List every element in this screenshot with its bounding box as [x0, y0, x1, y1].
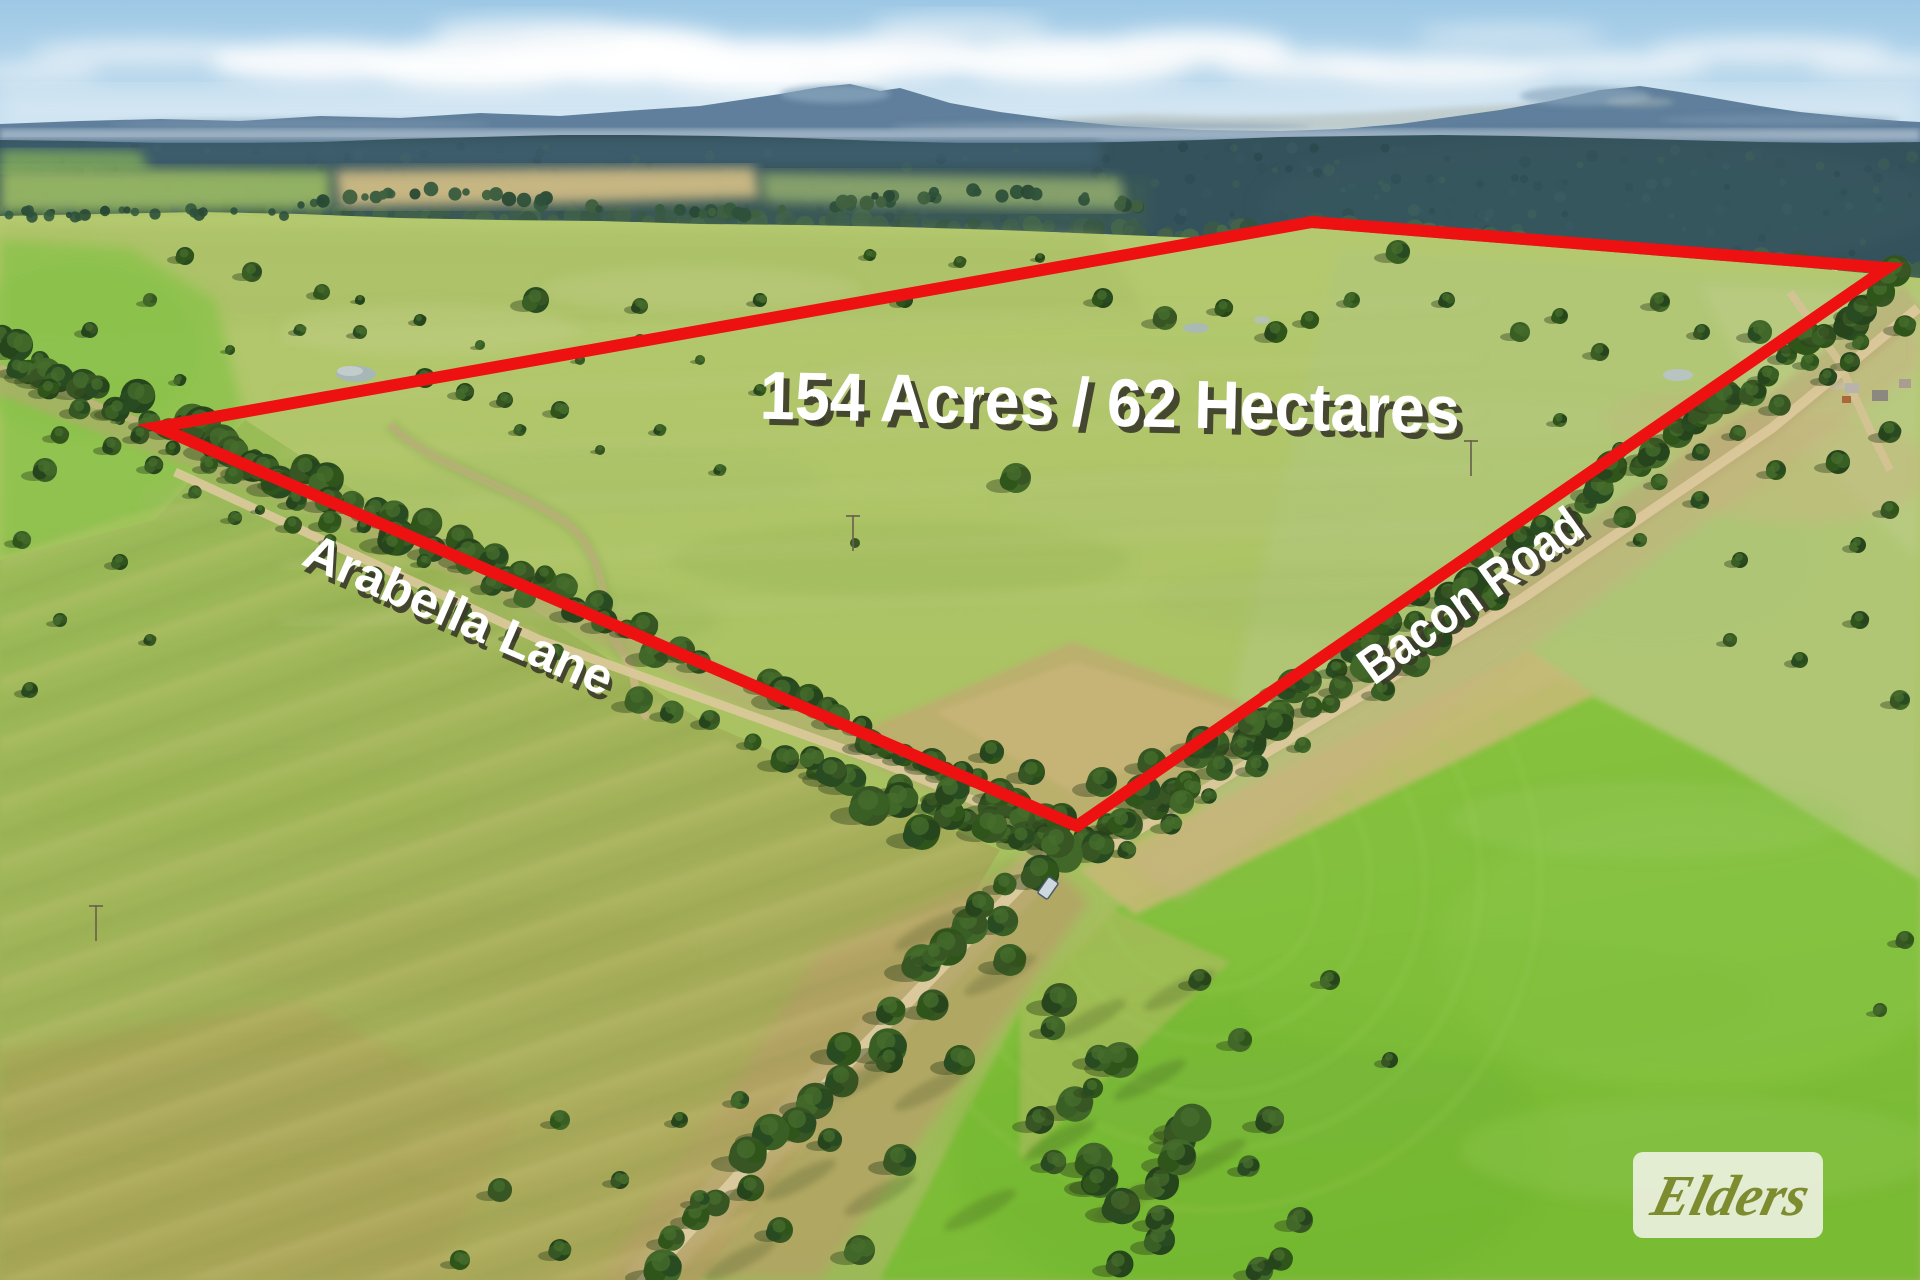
svg-text:154 Acres / 62 Hectares: 154 Acres / 62 Hectares — [759, 358, 1460, 449]
svg-text:Elders: Elders — [1645, 1164, 1817, 1228]
